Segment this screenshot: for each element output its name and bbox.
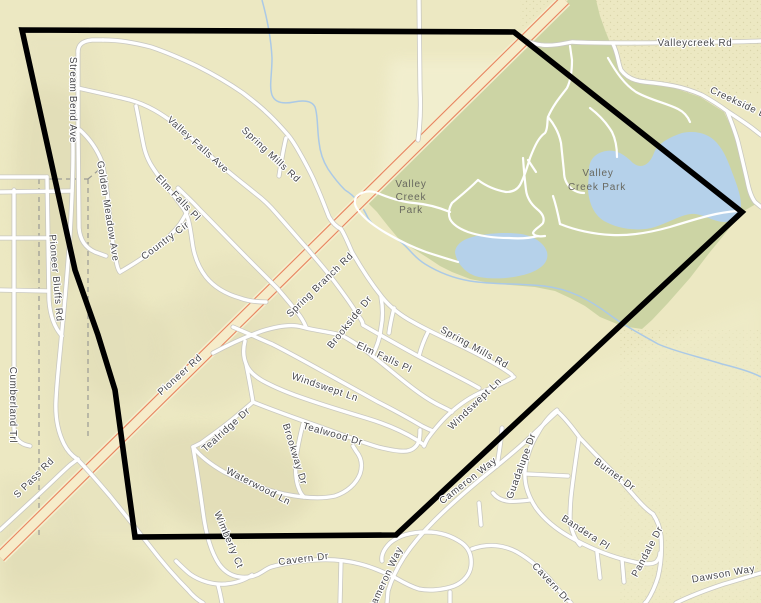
svg-text:Creek Park: Creek Park	[568, 182, 626, 193]
svg-text:Valleycreek Rd: Valleycreek Rd	[658, 38, 733, 49]
svg-text:Valley: Valley	[582, 168, 613, 179]
svg-text:Park: Park	[399, 205, 423, 216]
svg-text:Cumberland Trl: Cumberland Trl	[7, 367, 18, 444]
svg-text:Stream Bend Ave: Stream Bend Ave	[67, 57, 78, 143]
svg-text:Valley: Valley	[395, 179, 426, 190]
svg-text:Creek: Creek	[396, 192, 427, 203]
